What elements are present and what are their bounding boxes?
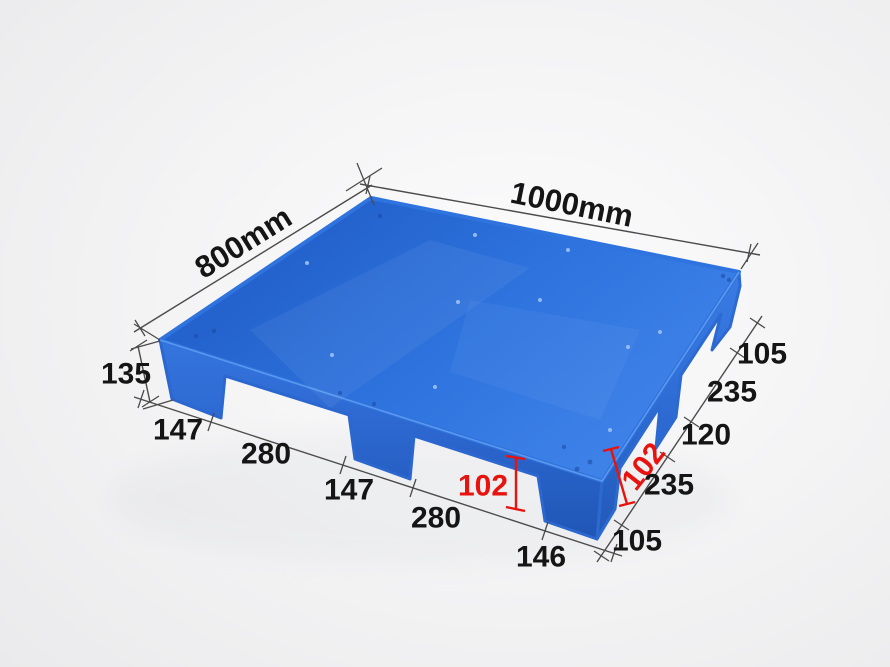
pallet-dimension-figure: 1000mm 800mm 135 147 280 147 280 146 105… [0, 0, 890, 667]
dim-label-foot-opening-left: 102 [458, 470, 508, 503]
dim-label-left-seg-1: 147 [153, 414, 203, 447]
figure-canvas: 1000mm 800mm 135 147 280 147 280 146 105… [0, 0, 890, 667]
dim-label-right-seg-4: 235 [707, 376, 757, 409]
dim-label-right-seg-3: 120 [681, 419, 731, 452]
dim-label-left-seg-3: 147 [324, 474, 374, 507]
dim-label-height: 135 [101, 358, 151, 391]
dim-label-right-seg-5: 105 [737, 338, 787, 371]
dim-label-right-seg-1: 105 [612, 525, 662, 558]
dim-label-left-seg-2: 280 [241, 438, 291, 471]
dim-label-left-seg-5: 146 [516, 541, 566, 574]
dim-label-left-seg-4: 280 [411, 502, 461, 535]
